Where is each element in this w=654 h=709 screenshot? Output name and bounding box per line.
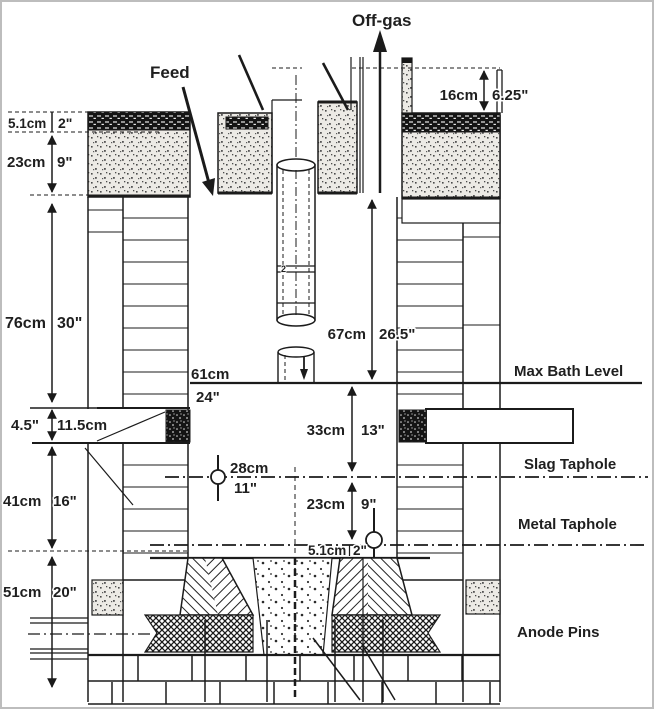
dim-roofband-in: 2" bbox=[58, 115, 72, 131]
max-bath-level-label: Max Bath Level bbox=[514, 363, 623, 380]
dim-freeboard-in: 30" bbox=[57, 315, 82, 332]
dim-electrode-in: 26.5" bbox=[379, 326, 415, 343]
slag-taphole-block-right bbox=[399, 410, 426, 442]
offgas-duct-wall bbox=[402, 58, 412, 113]
dim-hearth-cm: 51cm bbox=[3, 584, 41, 601]
dim-lowerwall-in: 16" bbox=[53, 493, 77, 510]
dim-launderslot-cm: 11.5cm bbox=[57, 417, 107, 434]
anode-pins-label: Anode Pins bbox=[517, 624, 600, 641]
dim-electrode-cm: 67cm bbox=[328, 326, 366, 343]
anode-pin-band-right bbox=[332, 615, 440, 652]
dim-slaghole-in: 11" bbox=[234, 480, 257, 497]
slag-taphole-block-left bbox=[166, 410, 190, 442]
dim-slagdepth-cm: 33cm bbox=[307, 422, 345, 439]
dim-metalhole-in: 2" bbox=[353, 543, 367, 558]
slag-taphole-label: Slag Taphole bbox=[524, 456, 616, 473]
dim-metalhole-cm: 5.1cm bbox=[308, 543, 346, 558]
dim-upperwall-in: 9" bbox=[57, 154, 72, 171]
dim-bathwidth-in: 24" bbox=[196, 389, 220, 406]
diagram-canvas: 2 bbox=[0, 0, 654, 709]
dim-launderslot-in: 4.5" bbox=[11, 417, 39, 434]
dim-freeboard-cm: 76cm bbox=[5, 315, 46, 332]
offgas-label: Off-gas bbox=[352, 11, 412, 30]
slag-taphole-symbol bbox=[211, 470, 225, 484]
dim-metaldepth-in: 9" bbox=[361, 496, 376, 513]
dim-slagdepth-in: 13" bbox=[361, 422, 385, 439]
dim-bathwidth-cm: 61cm bbox=[191, 366, 229, 383]
slag-launder-right bbox=[426, 409, 573, 443]
electrode-section-mark: 2 bbox=[281, 264, 286, 274]
electrode-tip-stub bbox=[278, 347, 314, 383]
dim-hearth-in: 20" bbox=[53, 584, 77, 601]
furnace-cross-section-diagram: 2 bbox=[0, 0, 654, 709]
dim-lowerwall-cm: 41cm bbox=[3, 493, 41, 510]
dim-duct-cm: 16cm bbox=[440, 87, 478, 104]
dim-metaldepth-cm: 23cm bbox=[307, 496, 345, 513]
feed-label: Feed bbox=[150, 63, 190, 82]
dim-duct-in: 6.25" bbox=[492, 87, 528, 104]
metal-taphole-label: Metal Taphole bbox=[518, 516, 617, 533]
dim-slaghole-cm: 28cm bbox=[230, 460, 268, 477]
metal-taphole-symbol bbox=[366, 532, 382, 548]
dim-roofband-cm: 5.1cm bbox=[8, 116, 46, 131]
anode-pin-band-left bbox=[145, 615, 253, 652]
dim-upperwall-cm: 23cm bbox=[7, 154, 45, 171]
hearth-center-column bbox=[253, 558, 332, 655]
